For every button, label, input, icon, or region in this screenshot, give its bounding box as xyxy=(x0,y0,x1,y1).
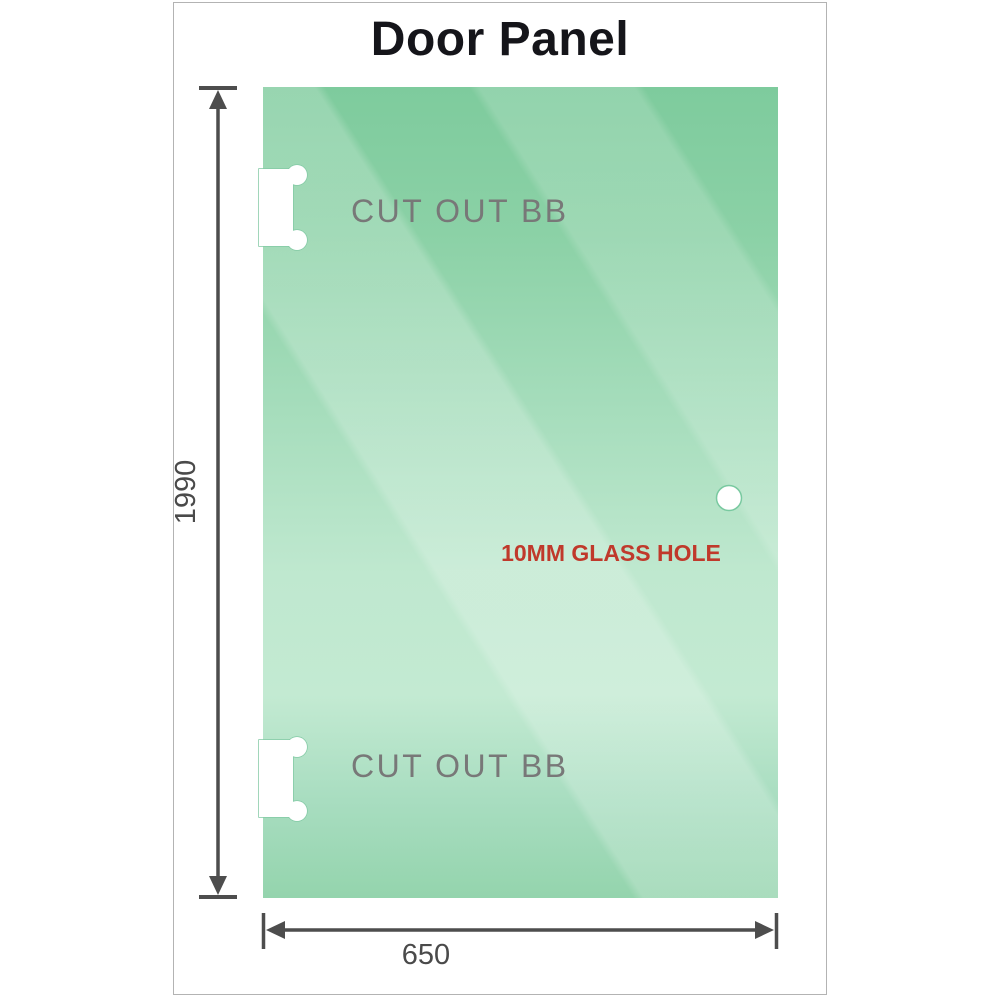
height-dim-arrow-down xyxy=(209,876,227,895)
width-dimension-label: 650 xyxy=(402,939,450,971)
height-dimension-label: 1990 xyxy=(174,460,202,525)
height-dimension xyxy=(199,88,237,897)
cutout-bottom-label: CUT OUT BB xyxy=(351,748,569,784)
diagram-frame: Door Panel xyxy=(173,2,827,995)
cutout-top-label: CUT OUT BB xyxy=(351,193,569,229)
glass-hole xyxy=(717,486,742,511)
page-background: Door Panel xyxy=(0,0,1000,1000)
width-dim-arrow-left xyxy=(266,921,285,939)
glass-hole-label: 10MM GLASS HOLE xyxy=(501,540,721,566)
door-panel-diagram: CUT OUT BB CUT OUT BB 10MM GLASS HOLE 19… xyxy=(174,3,826,994)
width-dimension xyxy=(264,913,777,949)
height-dim-arrow-up xyxy=(209,90,227,109)
width-dim-arrow-right xyxy=(755,921,774,939)
